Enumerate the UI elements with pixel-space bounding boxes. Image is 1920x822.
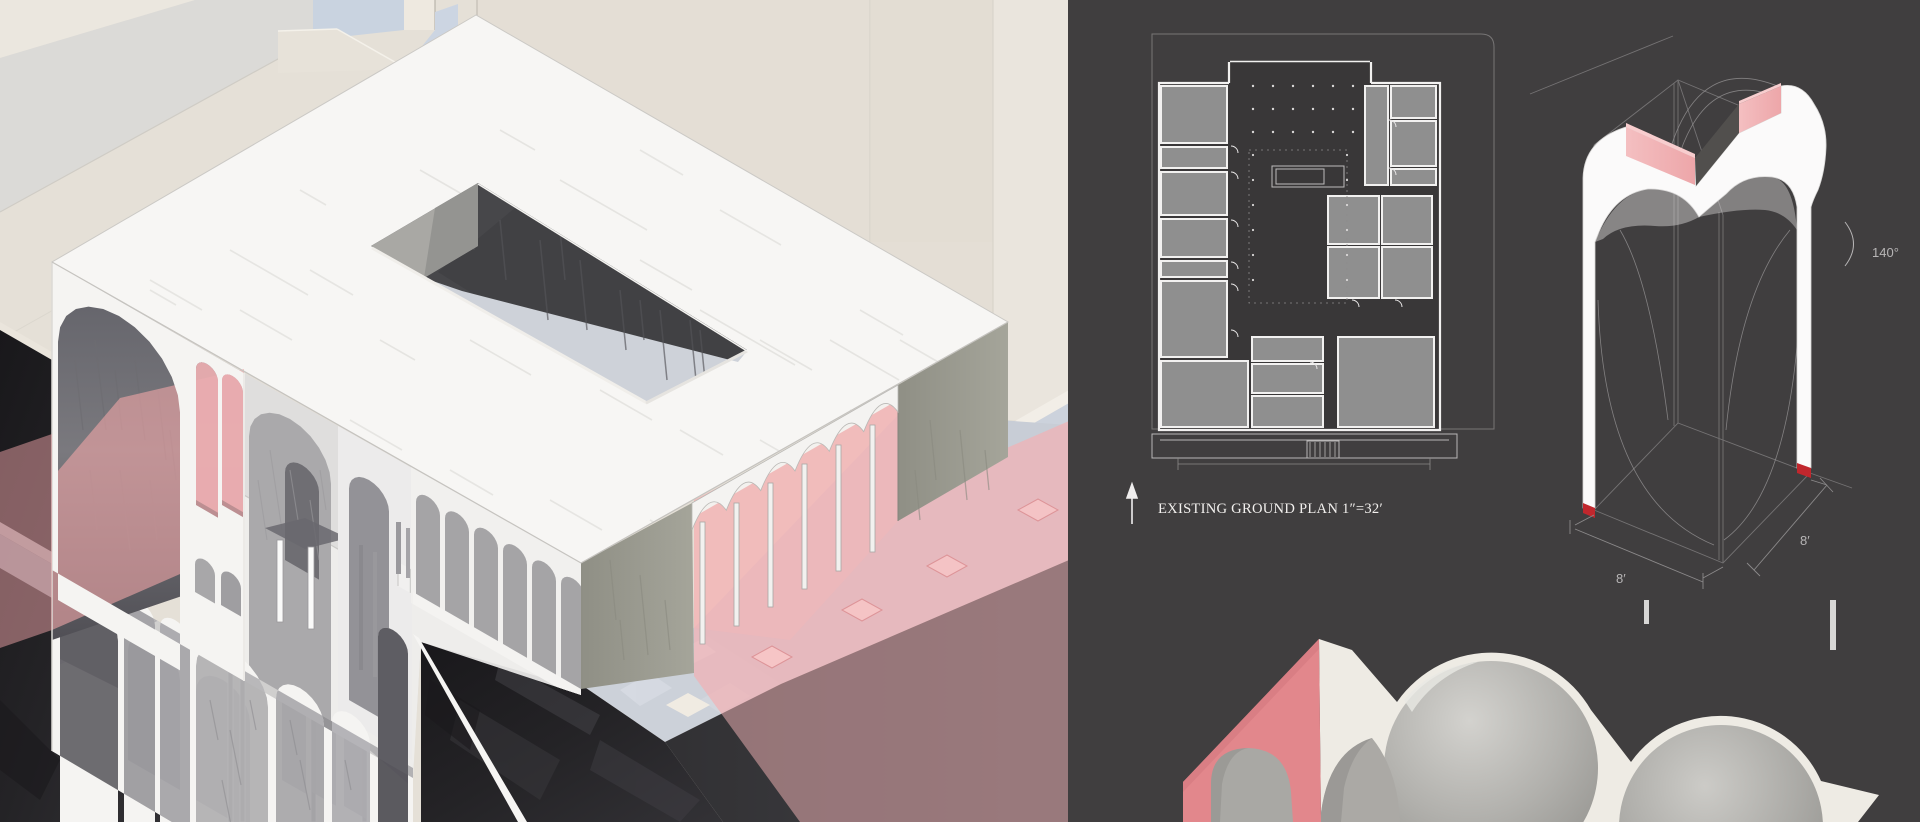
svg-text:140°: 140° <box>1872 245 1899 260</box>
svg-text:EXISTING GROUND PLAN 1″=32′: EXISTING GROUND PLAN 1″=32′ <box>1158 501 1383 517</box>
svg-text:8′: 8′ <box>1800 533 1810 548</box>
svg-text:8′: 8′ <box>1616 571 1626 586</box>
